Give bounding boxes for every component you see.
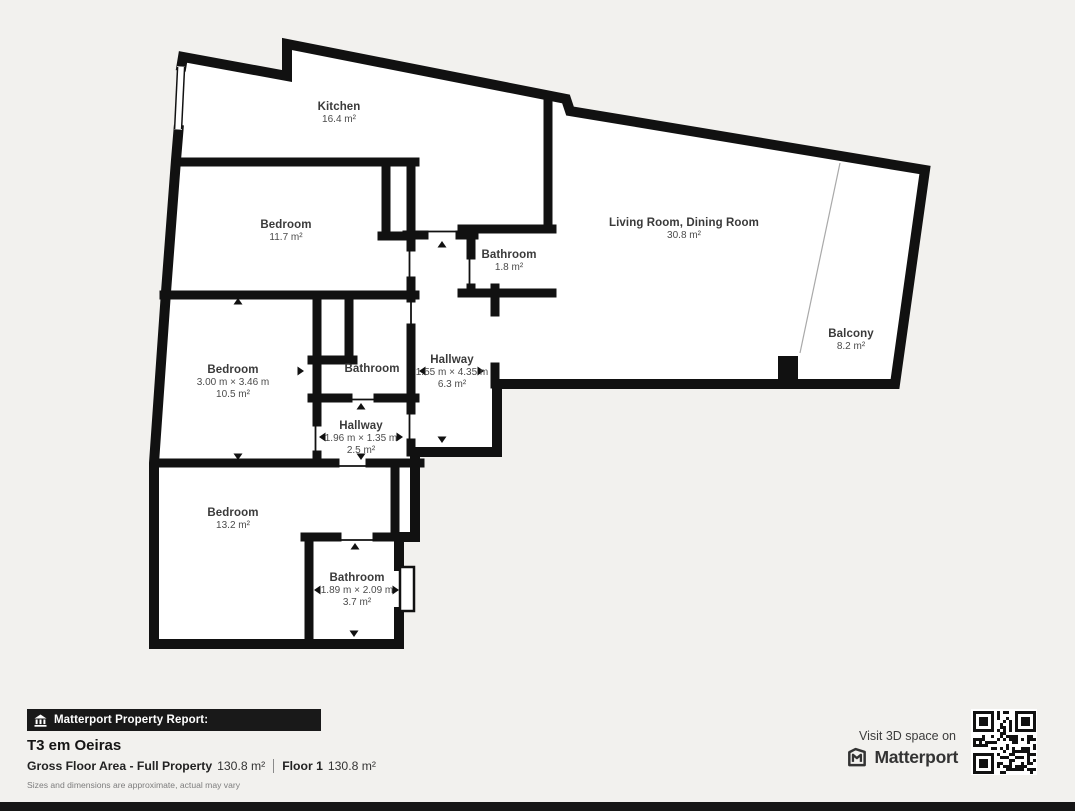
- floor-value: 130.8 m²: [328, 759, 376, 773]
- divider: [273, 759, 274, 773]
- matterport-wordmark: Matterport: [874, 747, 958, 768]
- matterport-link[interactable]: Matterport: [845, 746, 958, 769]
- matterport-logo-icon: [845, 746, 868, 769]
- floor-plan-page: Kitchen 16.4 m² Bedroom 11.7 m² Bathroom…: [0, 0, 1075, 811]
- gross-area-label: Gross Floor Area - Full Property: [27, 759, 212, 773]
- property-title: T3 em Oeiras: [27, 737, 121, 754]
- area-summary: Gross Floor Area - Full Property 130.8 m…: [27, 759, 376, 773]
- report-badge: Matterport Property Report:: [27, 709, 321, 731]
- building-icon: [34, 714, 47, 727]
- qr-code-pattern: [973, 711, 1036, 774]
- floor-plan-canvas: [0, 0, 1075, 811]
- visit-3d-text: Visit 3D space on: [859, 729, 956, 743]
- bathroom-window-niche: [400, 567, 414, 611]
- qr-code: [971, 709, 1037, 775]
- bottom-bar: [0, 802, 1075, 811]
- floor-silhouette: [154, 44, 925, 644]
- wall-pier: [778, 356, 798, 384]
- gross-area-value: 130.8 m²: [217, 759, 265, 773]
- report-badge-label: Matterport Property Report:: [54, 714, 208, 726]
- disclaimer-text: Sizes and dimensions are approximate, ac…: [27, 780, 240, 790]
- floor-label: Floor 1: [282, 759, 323, 773]
